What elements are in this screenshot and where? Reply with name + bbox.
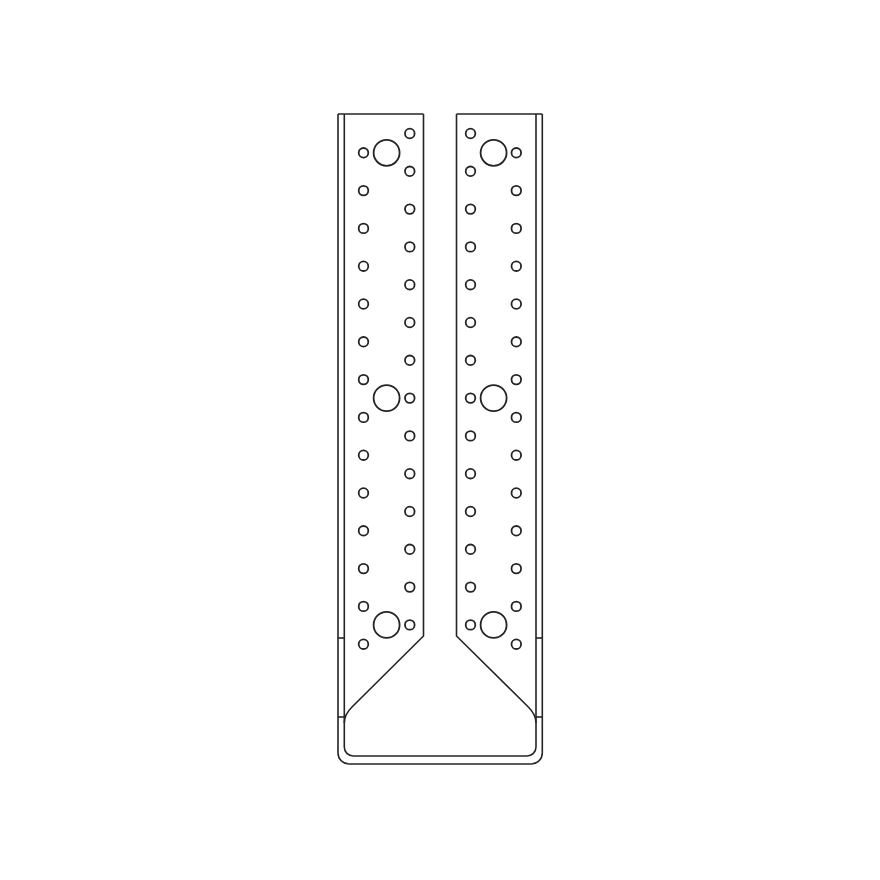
left-flange-inner-column-nail-hole: [405, 356, 415, 366]
right-flange-inner-column-nail-hole: [466, 582, 476, 592]
right-flange-inner-column-nail-hole: [466, 431, 476, 441]
right-flange-inner-column-nail-hole: [466, 620, 476, 630]
right-flange-inner-column-nail-hole: [466, 280, 476, 290]
right-flange-inner-column-nail-hole: [466, 167, 476, 177]
left-flange-outer-column-nail-hole: [359, 299, 369, 309]
right-flange-inner-column-nail-hole: [466, 129, 476, 139]
left-flange-inner-column-nail-hole: [405, 318, 415, 328]
bolt-hole: [481, 385, 507, 411]
right-flange-inner-column-nail-hole: [466, 242, 476, 252]
left-flange-outer-column-nail-hole: [359, 564, 369, 574]
left-flange-inner-column-nail-hole: [405, 620, 415, 630]
right-flange-outer-column-nail-hole: [512, 602, 522, 612]
bolt-hole: [481, 140, 507, 166]
right-flange-outer-column-nail-hole: [512, 148, 522, 158]
left-flange-outer-column-nail-hole: [359, 224, 369, 234]
joist-hanger-technical-drawing: [0, 0, 880, 880]
left-flange-outer-column-nail-hole: [359, 148, 369, 158]
right-flange-outer-column-nail-hole: [512, 186, 522, 196]
right-flange-inner-column-nail-hole: [466, 507, 476, 517]
right-flange-outer-column-nail-hole: [512, 299, 522, 309]
left-flange-inner-column-nail-hole: [405, 582, 415, 592]
bolt-hole: [374, 385, 400, 411]
left-flange-inner-column-nail-hole: [405, 242, 415, 252]
left-flange-outer-column-nail-hole: [359, 375, 369, 385]
left-flange-inner-column-nail-hole: [405, 507, 415, 517]
right-flange-outer-column-nail-hole: [512, 450, 522, 460]
right-flange-inner-column-nail-hole: [466, 318, 476, 328]
left-flange-inner-column-nail-hole: [405, 129, 415, 139]
right-flange-inner-column-nail-hole: [466, 393, 476, 403]
right-flange-outer-column-nail-hole: [512, 564, 522, 574]
drawing-canvas: [0, 0, 880, 880]
left-flange-outer-column-nail-hole: [359, 488, 369, 498]
right-flange-inner-column-nail-hole: [466, 545, 476, 555]
left-flange-outer-column-nail-hole: [359, 261, 369, 271]
left-flange-outer-column-nail-hole: [359, 186, 369, 196]
left-flange-outer-column-nail-hole: [359, 450, 369, 460]
left-flange-outer-column-nail-hole: [359, 639, 369, 649]
right-flange-inner-column-nail-hole: [466, 204, 476, 214]
left-flange-inner-column-nail-hole: [405, 393, 415, 403]
left-flange-inner-column-nail-hole: [405, 431, 415, 441]
right-flange-inner-column-nail-hole: [466, 469, 476, 479]
left-flange-inner-column-nail-hole: [405, 204, 415, 214]
left-flange-inner-column-nail-hole: [405, 280, 415, 290]
bolt-hole: [374, 140, 400, 166]
left-flange-outer-column-nail-hole: [359, 413, 369, 423]
right-flange-outer-column-nail-hole: [512, 375, 522, 385]
right-flange-outer-column-nail-hole: [512, 337, 522, 347]
left-flange-inner-column-nail-hole: [405, 545, 415, 555]
right-flange-outer-column-nail-hole: [512, 261, 522, 271]
bolt-hole: [374, 612, 400, 638]
outer-contour: [338, 114, 542, 764]
right-flange-inner-column-nail-hole: [466, 356, 476, 366]
left-flange-outer-column-nail-hole: [359, 337, 369, 347]
bolt-hole: [481, 612, 507, 638]
right-flange-outer-column-nail-hole: [512, 526, 522, 536]
bend-line-contour: [344, 114, 536, 756]
left-flange-inner-column-nail-hole: [405, 469, 415, 479]
right-flange-outer-column-nail-hole: [512, 639, 522, 649]
right-flange-outer-column-nail-hole: [512, 224, 522, 234]
right-flange-outer-column-nail-hole: [512, 413, 522, 423]
right-flange-outer-column-nail-hole: [512, 488, 522, 498]
left-flange-outer-column-nail-hole: [359, 526, 369, 536]
left-flange-inner-column-nail-hole: [405, 167, 415, 177]
left-flange-outer-column-nail-hole: [359, 602, 369, 612]
